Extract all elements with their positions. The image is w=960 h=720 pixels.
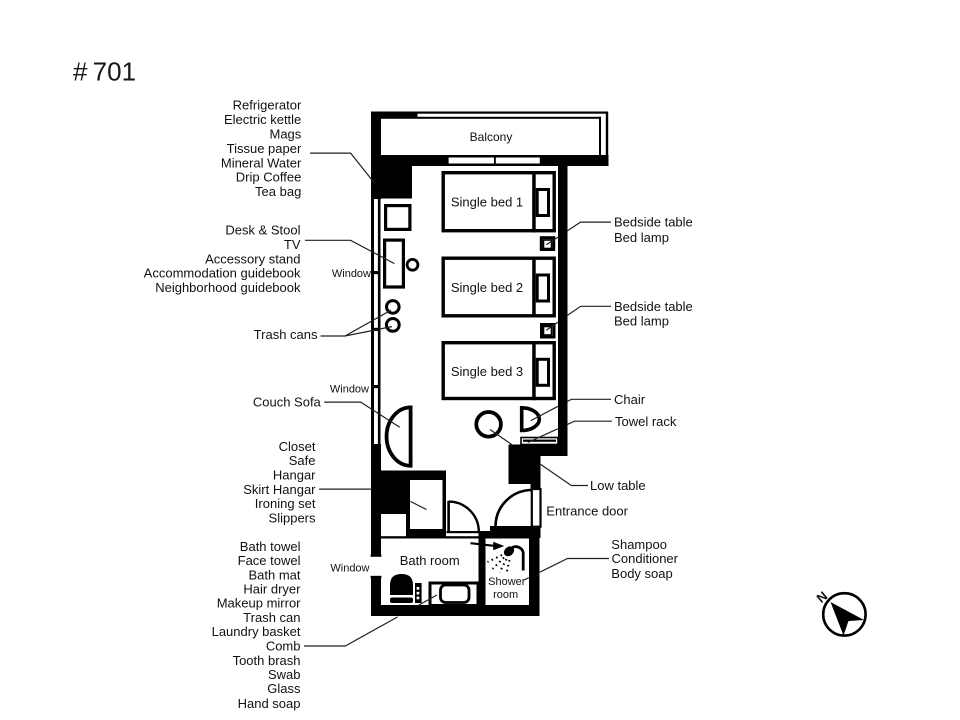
svg-text:Glass: Glass <box>267 681 301 696</box>
svg-text:Mags: Mags <box>270 127 302 142</box>
svg-text:Single bed 2: Single bed 2 <box>451 280 523 295</box>
svg-text:Accommodation guidebook: Accommodation guidebook <box>144 266 301 281</box>
svg-text:Closet: Closet <box>279 439 316 454</box>
svg-text:Bed lamp: Bed lamp <box>614 314 669 329</box>
svg-text:Drip Coffee: Drip Coffee <box>236 170 302 185</box>
svg-text:Window: Window <box>330 563 369 575</box>
svg-text:# 701: # 701 <box>73 57 136 87</box>
svg-text:Conditioner: Conditioner <box>612 551 679 566</box>
svg-text:Bedside table: Bedside table <box>614 215 693 230</box>
svg-text:Laundry basket: Laundry basket <box>212 624 301 639</box>
svg-text:Shower: Shower <box>488 576 526 588</box>
svg-text:Single bed 3: Single bed 3 <box>451 364 523 379</box>
svg-text:Bath mat: Bath mat <box>248 567 300 582</box>
svg-text:Chair: Chair <box>614 392 646 407</box>
svg-text:Bath room: Bath room <box>400 553 460 568</box>
svg-text:TV: TV <box>284 237 301 252</box>
svg-text:Mineral Water: Mineral Water <box>221 155 302 170</box>
svg-text:Low table: Low table <box>590 478 646 493</box>
svg-text:Towel rack: Towel rack <box>615 414 677 429</box>
svg-text:Refrigerator: Refrigerator <box>233 98 302 113</box>
svg-text:Bath towel: Bath towel <box>240 539 301 554</box>
svg-text:Couch Sofa: Couch Sofa <box>253 395 322 410</box>
svg-text:Electric kettle: Electric kettle <box>224 112 301 127</box>
svg-text:room: room <box>493 589 518 601</box>
svg-text:Window: Window <box>330 384 369 396</box>
svg-text:Bedside table: Bedside table <box>614 299 693 314</box>
svg-text:Single bed 1: Single bed 1 <box>451 195 523 210</box>
svg-text:Safe: Safe <box>289 453 316 468</box>
svg-text:Face towel: Face towel <box>238 553 301 568</box>
svg-text:Entrance door: Entrance door <box>546 503 628 518</box>
svg-text:Hand soap: Hand soap <box>238 696 301 711</box>
svg-text:Trash can: Trash can <box>243 610 300 625</box>
svg-text:Tea bag: Tea bag <box>255 184 301 199</box>
svg-text:Ironing set: Ironing set <box>255 496 316 511</box>
svg-text:Slippers: Slippers <box>269 510 316 525</box>
svg-text:Hair dryer: Hair dryer <box>243 582 301 597</box>
svg-text:Tissue paper: Tissue paper <box>227 141 302 156</box>
svg-text:Skirt Hangar: Skirt Hangar <box>243 482 316 497</box>
svg-text:Balcony: Balcony <box>470 130 513 144</box>
svg-text:Makeup mirror: Makeup mirror <box>217 596 301 611</box>
svg-text:Desk & Stool: Desk & Stool <box>225 223 300 238</box>
svg-text:Tooth brash: Tooth brash <box>233 653 301 668</box>
svg-text:Neighborhood guidebook: Neighborhood guidebook <box>155 280 301 295</box>
svg-text:Bed lamp: Bed lamp <box>614 230 669 245</box>
svg-text:Accessory stand: Accessory stand <box>205 251 300 266</box>
svg-text:Trash cans: Trash cans <box>254 327 318 342</box>
svg-text:Hangar: Hangar <box>273 468 316 483</box>
svg-text:Swab: Swab <box>268 667 301 682</box>
svg-text:Comb: Comb <box>266 639 301 654</box>
svg-text:Window: Window <box>332 268 371 280</box>
svg-text:Shampoo: Shampoo <box>611 537 667 552</box>
svg-text:Body soap: Body soap <box>611 566 672 581</box>
